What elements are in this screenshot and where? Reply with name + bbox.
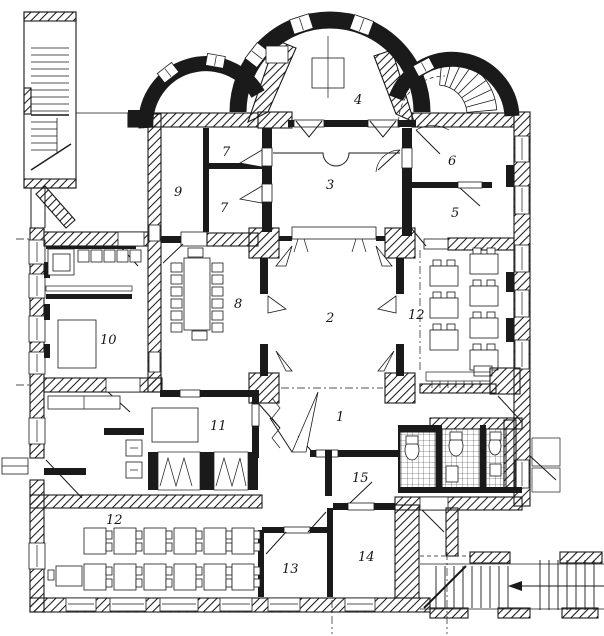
door-leaf [163,244,183,263]
room-label-12a: 12 [408,308,425,323]
kitchen-table [58,320,96,368]
room-label-10: 10 [100,333,117,348]
interior-walls [30,110,522,598]
door-leaf [460,188,480,206]
door-leaf [416,130,440,154]
room-label-14: 14 [358,550,375,565]
counter [152,408,198,442]
room-label-15: 15 [352,471,369,486]
door-leaf [292,392,318,452]
door-leaf [46,460,82,498]
door-leaf [266,532,286,554]
room-label-13: 13 [282,562,299,577]
meeting-table [171,248,223,340]
room-label-1: 1 [336,410,344,425]
classroom-right-furniture [420,248,520,394]
door-leaf [378,351,394,371]
room-label-3: 3 [326,178,334,193]
coat-rack [160,458,192,486]
floor-plan-canvas: 1 2 3 4 5 6 7 7 8 9 10 11 12 12 13 14 15 [0,0,604,636]
coat-rack [216,458,246,486]
cloakroom-furniture [148,408,258,490]
teacher-desk [56,566,82,586]
classroom-bottom-furniture [48,528,260,590]
door-leaf [240,186,262,203]
room-label-12b: 12 [106,513,123,528]
entry-arrow-icon [508,581,522,591]
door-leaf [378,296,396,313]
bench [292,227,376,252]
exterior-stair [420,552,604,634]
room-label-2: 2 [325,311,334,326]
room-label-8: 8 [234,297,242,312]
room-label-7b: 7 [220,201,229,216]
door-leaf [276,351,292,371]
door-leaf [268,296,286,313]
apse-walls [146,14,512,128]
stair-tower [24,12,128,228]
room-label-9: 9 [174,185,182,200]
room-label-7a: 7 [222,145,231,160]
wc-block [398,396,560,493]
kitchen-fixtures [44,246,144,478]
door-leaf [270,418,292,452]
door-leaf [422,510,444,532]
room-label-11: 11 [210,419,227,434]
room-label-4: 4 [353,93,362,108]
floor-plan-page: 1 2 3 4 5 6 7 7 8 9 10 11 12 12 13 14 15 [0,0,604,636]
room-label-6: 6 [448,154,456,169]
room-label-5: 5 [451,206,459,221]
